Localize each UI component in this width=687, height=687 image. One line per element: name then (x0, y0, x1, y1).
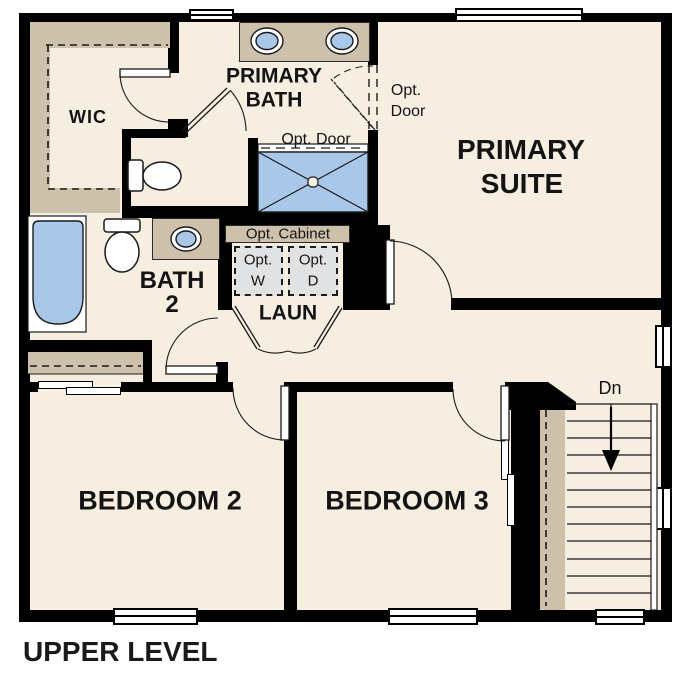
toilet-icon (128, 160, 181, 191)
room-label-primary-bath-line2: BATH (246, 90, 303, 111)
door-wic (120, 69, 170, 122)
annotation-opt-cabinet: Opt. Cabinet (246, 227, 330, 242)
room-label-primary-suite-line2: SUITE (481, 170, 563, 198)
door-bedroom2 (233, 386, 289, 440)
room-label-wic: WIC (69, 108, 107, 126)
annotation-stairs-down: Dn (598, 379, 621, 397)
vanity-sink-icon (251, 28, 358, 54)
page-title: UPPER LEVEL (23, 636, 217, 668)
room-label-laundry: LAUN (259, 303, 317, 324)
annotation-opt-washer-line2: W (251, 274, 265, 289)
room-label-bedroom3: BEDROOM 3 (325, 488, 489, 515)
room-label-primary-suite-line1: PRIMARY (457, 136, 585, 164)
room-label-bedroom2: BEDROOM 2 (78, 488, 242, 515)
door-water-closet (183, 88, 246, 133)
stairs-down-arrow (602, 407, 620, 471)
plan-linework (0, 0, 687, 687)
room-label-primary-bath-line1: PRIMARY (226, 66, 322, 87)
door-optional-suite (331, 65, 378, 130)
stairs (505, 382, 657, 610)
floor-plan: WIC PRIMARY BATH PRIMARY SUITE BATH 2 LA… (0, 0, 687, 687)
annotation-opt-door-suite-line1: Opt. (391, 83, 421, 99)
door-bedroom3 (453, 386, 509, 441)
annotation-opt-door-suite-line2: Door (391, 104, 426, 120)
annotation-opt-dryer-line1: Opt. (299, 253, 327, 268)
door-primary-suite (386, 240, 452, 304)
bath2-sink-icon (171, 227, 201, 251)
bathtub (28, 216, 86, 332)
annotation-opt-washer-line1: Opt. (244, 253, 272, 268)
room-label-bath2-line2: 2 (165, 293, 178, 317)
bedroom2-closet-shelf-lines (28, 366, 143, 374)
shower (258, 144, 368, 212)
annotation-opt-dryer-line2: D (308, 274, 319, 289)
room-label-bath2-line1: BATH (140, 269, 205, 293)
annotation-opt-door-shower: Opt. Door (281, 132, 350, 148)
door-bath2 (166, 318, 218, 374)
toilet-icon (104, 219, 140, 272)
